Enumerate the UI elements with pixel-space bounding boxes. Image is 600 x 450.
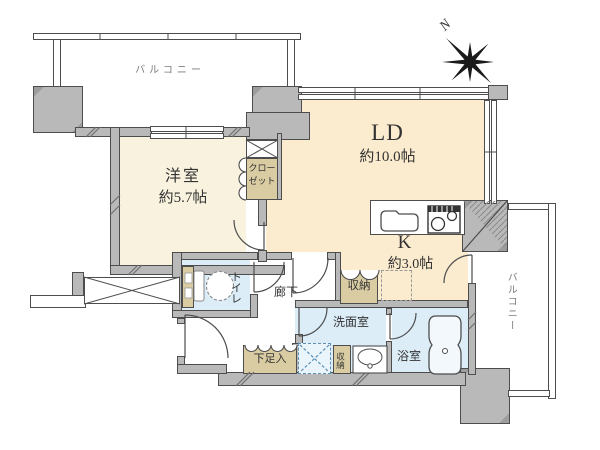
ld-top-window-outer bbox=[298, 87, 492, 93]
storage-k-label: 収納 bbox=[340, 280, 378, 293]
bathroom-floor bbox=[392, 308, 468, 375]
toilet-bottom-wall bbox=[172, 310, 258, 318]
left-wall bbox=[110, 127, 120, 275]
ld-top-window-inner bbox=[298, 94, 492, 100]
toilet-top-wall bbox=[172, 252, 258, 260]
toilet-right-wall bbox=[250, 294, 258, 318]
right-wall bbox=[468, 283, 476, 375]
hallway-label: 廊下 bbox=[262, 286, 310, 299]
entry-left-wall-a bbox=[177, 318, 185, 324]
western-window bbox=[150, 126, 224, 132]
pillar-top-left bbox=[33, 86, 83, 133]
ld-right-window-inner bbox=[491, 100, 497, 204]
entry-corner-wall bbox=[177, 364, 227, 374]
pillar-bottom-right bbox=[460, 368, 510, 424]
washer-space bbox=[298, 343, 331, 374]
void-x-box bbox=[84, 277, 180, 304]
western-bottom-wall bbox=[110, 265, 285, 275]
balcony-top-rail-right bbox=[287, 39, 295, 87]
balcony-right-rail-bottom bbox=[508, 390, 550, 397]
closet-label-line1: クロー bbox=[246, 163, 278, 173]
bottom-wall bbox=[218, 372, 466, 386]
pipe-space-box bbox=[246, 140, 278, 158]
compass-rose-icon bbox=[442, 38, 494, 83]
balcony-right-label: バルコニー bbox=[505, 256, 516, 348]
balcony-right-rail bbox=[548, 203, 556, 399]
ld-size: 約10.0帖 bbox=[300, 149, 475, 166]
ld-label: LD bbox=[300, 120, 475, 146]
storage-wash-label: 収納 bbox=[335, 347, 345, 373]
exterior-step-bar bbox=[30, 295, 86, 308]
closet-label-line2: ゼット bbox=[246, 176, 278, 186]
entry-door bbox=[185, 315, 228, 358]
western-room-size: 約5.7帖 bbox=[120, 190, 246, 207]
western-room-label: 洋室 bbox=[120, 168, 246, 186]
ld-corner-block bbox=[488, 85, 508, 100]
shoe-cabinet-label: 下足入 bbox=[245, 353, 295, 365]
western-window-inner bbox=[150, 133, 224, 139]
kitchen-size: 約3.0帖 bbox=[378, 257, 443, 273]
balcony-right-rail-top bbox=[508, 203, 550, 210]
kitchen-counter bbox=[370, 200, 465, 235]
kitchen-label: K bbox=[382, 232, 427, 253]
pillar-kitchen bbox=[462, 200, 508, 252]
wash-bath-wall-a bbox=[386, 308, 392, 315]
ld-hall-wall-a bbox=[266, 252, 292, 260]
balcony-top-label: バルコニー bbox=[108, 65, 232, 76]
living-dining-floor-patch bbox=[266, 196, 282, 252]
closet-stub-wall bbox=[258, 198, 267, 226]
balcony-bottom-wall-right bbox=[222, 127, 250, 137]
toilet-cabinet bbox=[182, 266, 194, 308]
balcony-top-rail bbox=[33, 33, 301, 40]
refrigerator-space bbox=[381, 270, 412, 301]
floor-plan: バルコニー 洋室 約5.7帖 クロー ゼット LD 約10.0帖 K 約3.0帖… bbox=[0, 0, 600, 450]
bathroom-label: 浴室 bbox=[390, 350, 428, 363]
washroom-label: 洗面室 bbox=[315, 316, 387, 329]
balcony-top-rail-left bbox=[53, 39, 61, 87]
compass-north-label: N bbox=[433, 13, 458, 38]
ld-right-window-outer bbox=[484, 100, 490, 204]
washroom-top-wall bbox=[295, 300, 468, 308]
toilet-label: トイレ bbox=[229, 264, 241, 310]
